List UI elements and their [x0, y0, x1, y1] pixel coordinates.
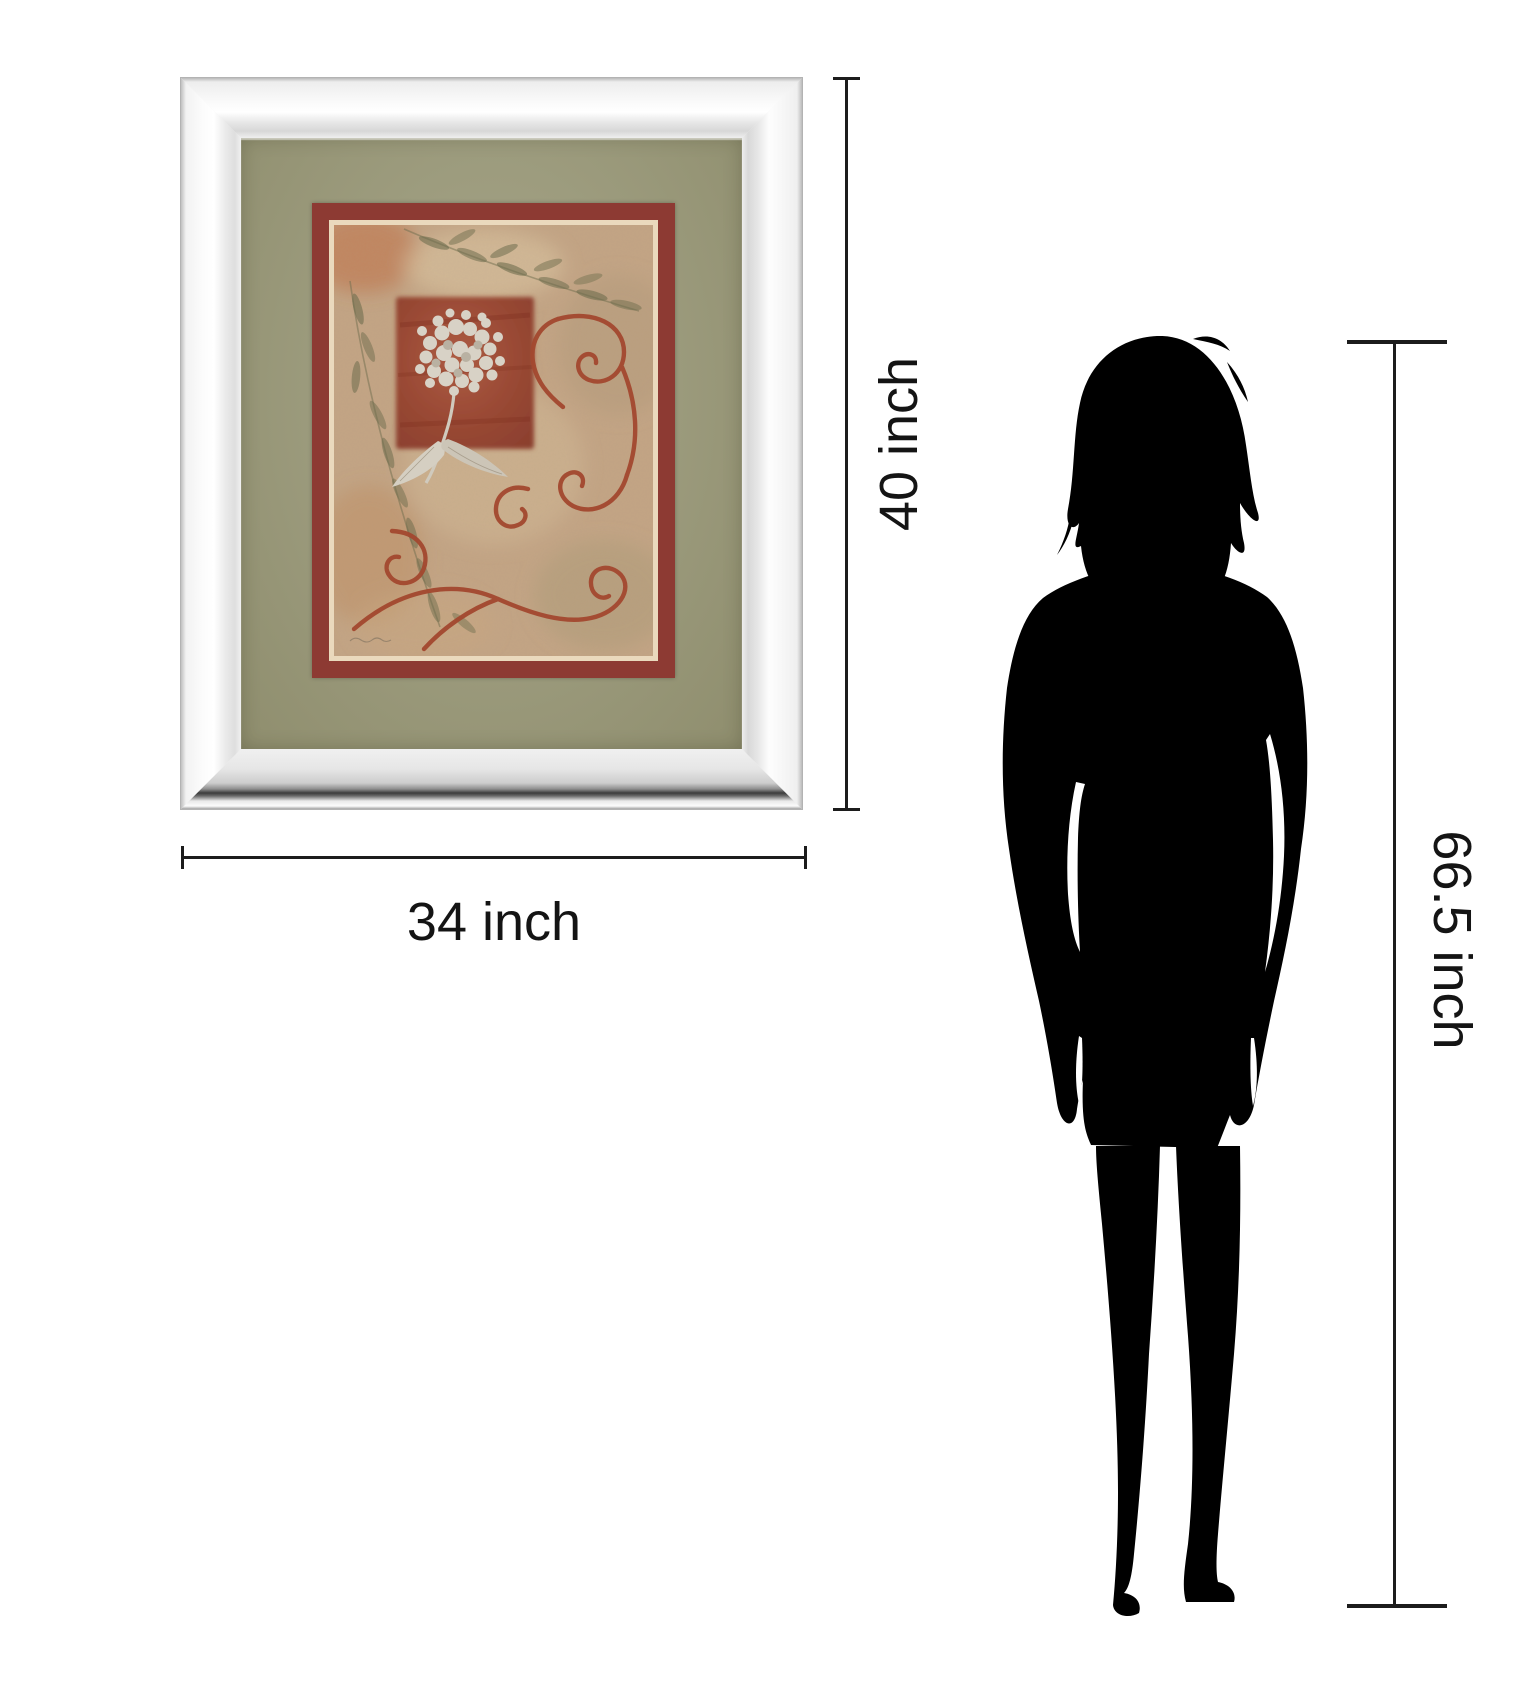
mirror-frame	[181, 78, 802, 809]
person-height-label: 66.5 inch	[1425, 830, 1479, 1049]
size-comparison-diagram: 40 inch 34 inch 66.5 inch	[0, 0, 1536, 1688]
frame-height-label: 40 inch	[872, 357, 926, 531]
artwork-mat	[241, 138, 742, 749]
frame-width-label: 34 inch	[407, 895, 581, 949]
artwork-print	[312, 203, 675, 678]
frame-rail-left	[181, 78, 241, 809]
frame-width-left-tick	[181, 846, 184, 869]
person-height-dimension-line	[1393, 342, 1396, 1608]
person-silhouette	[975, 336, 1335, 1618]
artwork-print-illustration	[334, 225, 653, 656]
frame-width-dimension-line	[182, 856, 806, 859]
person-height-bottom-tick	[1347, 1604, 1447, 1608]
frame-height-dimension-line	[845, 78, 848, 810]
person-height-top-tick	[1347, 340, 1447, 344]
frame-rail-right	[742, 78, 802, 809]
silhouette-left-leg	[1096, 1146, 1160, 1616]
frame-height-bottom-tick	[833, 808, 860, 811]
silhouette-body	[1003, 562, 1308, 1148]
frame-width-right-tick	[804, 846, 807, 869]
frame-rail-bottom	[181, 749, 802, 809]
silhouette-hair	[1067, 336, 1258, 602]
frame-rail-top	[181, 78, 802, 138]
frame-height-top-tick	[833, 77, 860, 80]
silhouette-right-leg	[1176, 1146, 1240, 1602]
